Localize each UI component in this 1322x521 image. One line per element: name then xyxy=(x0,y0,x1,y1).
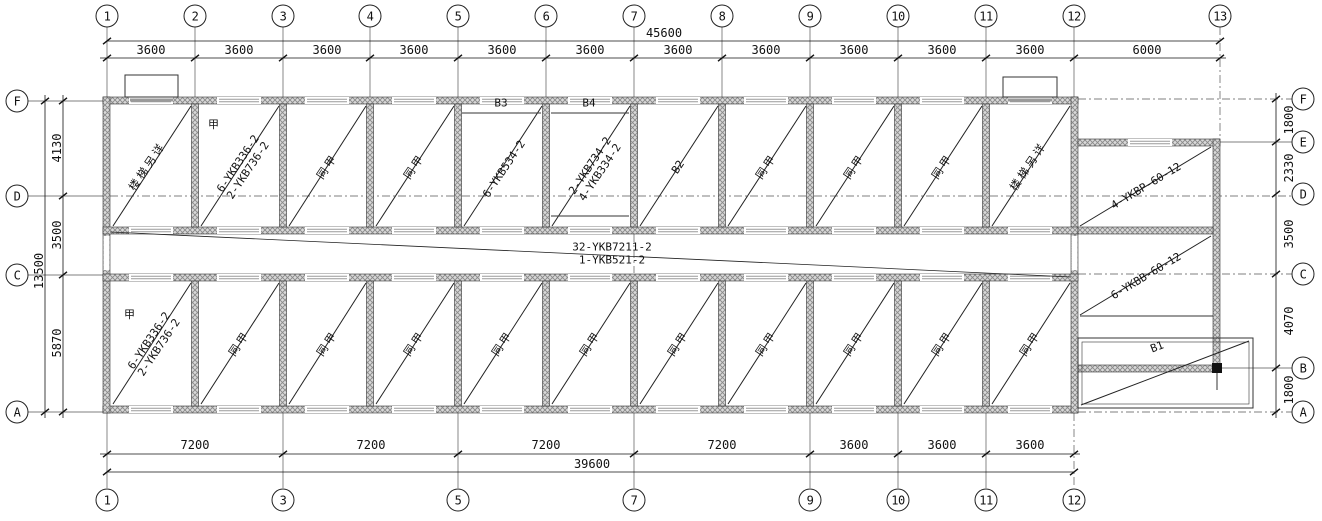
grid-bubble-top-1: 1 xyxy=(96,5,119,28)
grid-bubble-top-12: 12 xyxy=(1063,5,1086,28)
grid-bubble-top-3: 3 xyxy=(272,5,295,28)
room-mark-jia-top: 甲 xyxy=(208,116,222,132)
grid-bubble-top-2: 2 xyxy=(184,5,207,28)
grid-bubble-bottom-1: 1 xyxy=(96,489,119,512)
dim-top-seg-4: 3600 xyxy=(488,43,517,57)
dim-top-seg-6: 3600 xyxy=(664,43,693,57)
grid-bubble-bottom-3: 3 xyxy=(272,489,295,512)
grid-bubble-bottom-10: 10 xyxy=(887,489,910,512)
grid-bubble-right-C: C xyxy=(1292,263,1315,286)
dim-top-seg-7: 3600 xyxy=(752,43,781,57)
grid-bubble-bottom-5: 5 xyxy=(447,489,470,512)
dim-top-seg-0: 3600 xyxy=(137,43,166,57)
corridor-slab-label-2: 1-YKB521-2 xyxy=(579,254,645,267)
grid-bubble-top-13: 13 xyxy=(1209,5,1232,28)
dim-bottom-seg-1: 7200 xyxy=(357,438,386,452)
dim-top-seg-2: 3600 xyxy=(313,43,342,57)
grid-bubble-top-4: 4 xyxy=(359,5,382,28)
dim-right-seg-0: 1800 xyxy=(1282,106,1296,135)
dim-top-total: 45600 xyxy=(646,26,682,40)
dim-bottom-seg-5: 3600 xyxy=(928,438,957,452)
grid-bubble-bottom-9: 9 xyxy=(799,489,822,512)
grid-bubble-top-11: 11 xyxy=(975,5,998,28)
dim-bottom-seg-6: 3600 xyxy=(1016,438,1045,452)
grid-bubble-top-5: 5 xyxy=(447,5,470,28)
grid-bubble-left-A: A xyxy=(6,401,29,424)
grid-bubble-bottom-7: 7 xyxy=(623,489,646,512)
dim-left-total: 13500 xyxy=(32,253,46,289)
dim-top-seg-8: 3600 xyxy=(840,43,869,57)
dim-bottom-seg-4: 3600 xyxy=(840,438,869,452)
grid-bubble-top-8: 8 xyxy=(711,5,734,28)
dim-top-seg-9: 3600 xyxy=(928,43,957,57)
grid-bubble-left-F: F xyxy=(6,90,29,113)
dim-bottom-seg-0: 7200 xyxy=(181,438,210,452)
dim-bottom-seg-2: 7200 xyxy=(532,438,561,452)
dim-left-seg-1: 3500 xyxy=(50,221,64,250)
wall-layer xyxy=(103,97,1220,413)
dim-top-seg-1: 3600 xyxy=(225,43,254,57)
room-mark-jia-bottom: 甲 xyxy=(124,306,138,322)
dim-right-seg-3: 4070 xyxy=(1282,307,1296,336)
grid-bubble-right-E: E xyxy=(1292,131,1315,154)
grid-bubble-right-B: B xyxy=(1292,357,1315,380)
dim-right-seg-4: 1800 xyxy=(1282,376,1296,405)
dim-right-seg-1: 2330 xyxy=(1282,154,1296,183)
dim-top-seg-3: 3600 xyxy=(400,43,429,57)
structural-floor-plan: 1 2 3 4 5 6 7 8 9 10 11 12 13 1 3 5 7 9 … xyxy=(0,0,1322,521)
dim-top-seg-5: 3600 xyxy=(576,43,605,57)
grid-bubble-left-C: C xyxy=(6,264,29,287)
dim-right-seg-2: 3500 xyxy=(1282,220,1296,249)
grid-bubble-left-D: D xyxy=(6,185,29,208)
grid-bubble-right-A: A xyxy=(1292,401,1315,424)
beam-label-b4: B4 xyxy=(582,97,595,110)
grid-bubble-bottom-11: 11 xyxy=(975,489,998,512)
grid-bubble-right-F: F xyxy=(1292,88,1315,111)
dim-top-seg-11: 6000 xyxy=(1133,43,1162,57)
grid-bubble-top-7: 7 xyxy=(623,5,646,28)
grid-bubble-right-D: D xyxy=(1292,183,1315,206)
dim-top-seg-10: 3600 xyxy=(1016,43,1045,57)
beam-label-b3: B3 xyxy=(494,97,507,110)
canopy-and-porch xyxy=(125,75,1253,408)
dim-left-seg-2: 5870 xyxy=(50,329,64,358)
corridor-slab-label-1: 32-YKB7211-2 xyxy=(572,241,651,254)
dim-bottom-seg-3: 7200 xyxy=(708,438,737,452)
dim-bottom-total: 39600 xyxy=(574,457,610,471)
grid-bubble-top-6: 6 xyxy=(535,5,558,28)
grid-bubble-bottom-12: 12 xyxy=(1063,489,1086,512)
grid-bubble-top-10: 10 xyxy=(887,5,910,28)
dim-left-seg-0: 4130 xyxy=(50,134,64,163)
grid-bubble-top-9: 9 xyxy=(799,5,822,28)
